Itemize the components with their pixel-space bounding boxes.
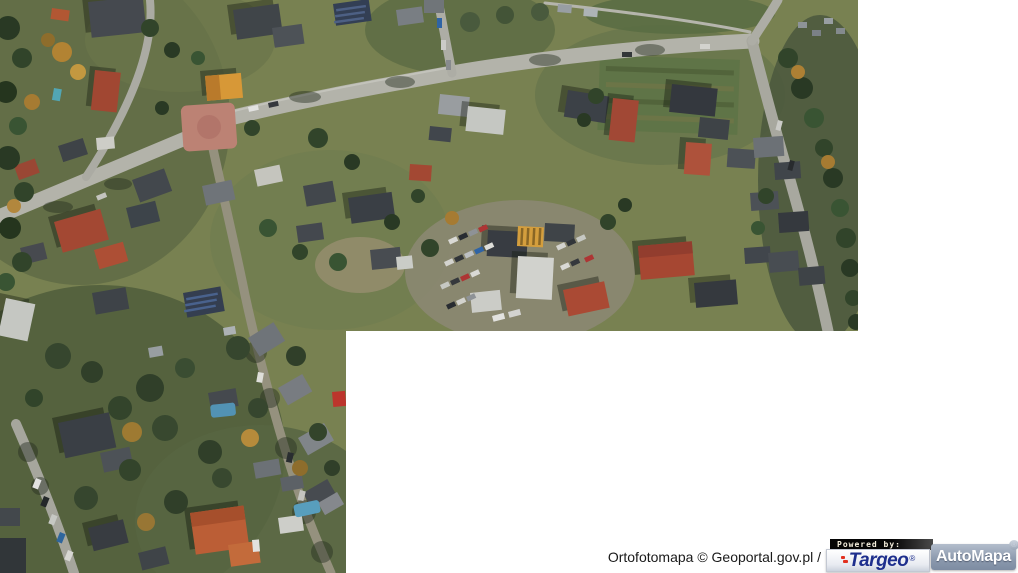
targeo-logo[interactable]: Targeo ® (826, 549, 930, 572)
targeo-automapa-logo[interactable]: Powered by: Targeo ® AutoMapa ® (826, 539, 1016, 572)
aerial-photo-tiles (0, 0, 1018, 573)
targeo-registered-mark: ® (909, 554, 915, 563)
targeo-dash-icon (841, 555, 848, 567)
attribution-text: Ortofotomapa © Geoportal.gov.pl / (608, 549, 821, 565)
photo-tint (0, 0, 858, 573)
automapa-logo-text: AutoMapa (936, 548, 1011, 566)
targeo-logo-text: Targeo (849, 550, 909, 572)
map-app-window: Ortofotomapa © Geoportal.gov.pl / Powere… (0, 0, 1018, 573)
automapa-registered-mark: ® (1009, 540, 1018, 550)
map-viewport[interactable] (0, 0, 1018, 573)
map-attribution-bar: Ortofotomapa © Geoportal.gov.pl / Powere… (608, 538, 1016, 573)
automapa-logo[interactable]: AutoMapa ® (931, 544, 1016, 570)
